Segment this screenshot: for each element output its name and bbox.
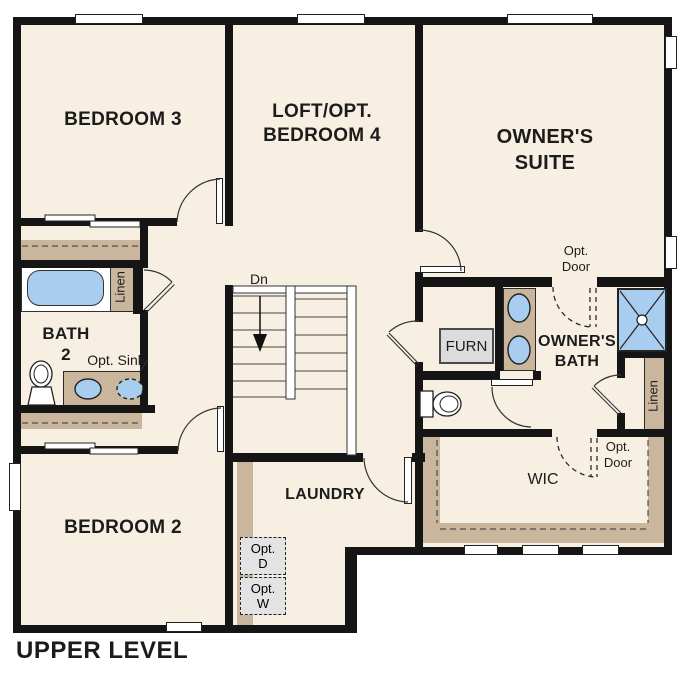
door-leaf-laundry (404, 457, 412, 504)
wall-wic-north-east (597, 429, 672, 437)
optional-dryer-box: Opt. D (240, 537, 286, 575)
bath2-vanity (63, 371, 143, 407)
bedroom3-closet-shelf (21, 240, 142, 260)
room-label-owners-bath-line2: BATH (527, 352, 627, 372)
wic-shelf-bottom (423, 523, 664, 543)
wall-laundry-north-stub (412, 453, 425, 462)
room-label-loft-line2: BEDROOM 4 (237, 124, 407, 148)
door-leaf-bedroom3 (216, 178, 223, 224)
wall-bedroom2-north (13, 446, 178, 454)
wall-loft-suite (415, 17, 423, 232)
window-suite-right-1 (665, 36, 677, 69)
wall-linen-west-lower (617, 413, 625, 437)
wall-laundry-north (233, 453, 363, 462)
wall-furnace-vanity (495, 287, 503, 371)
wall-bedroom3-loft (225, 17, 233, 226)
room-label-owners-bath-line1: OWNER'S (527, 332, 627, 352)
bedroom2-closet-shelf (21, 413, 142, 429)
room-label-owners-suite: OWNER'S SUITE (465, 124, 625, 176)
label-stairs-down: Dn (243, 271, 275, 287)
label-opt-door-wic: Opt. Door (596, 439, 640, 471)
window-bedroom3-top (75, 14, 143, 24)
label-opt-door-suite-line1: Opt. (553, 243, 599, 259)
door-leaf-owners-suite (420, 266, 465, 273)
furnace-label: FURN (446, 338, 488, 355)
wall-suite-south-east (597, 277, 672, 287)
label-linen-bath2: Linen (113, 260, 131, 315)
wall-exterior-left (13, 17, 21, 633)
wall-wc-north (415, 371, 500, 380)
window-wic-2 (522, 545, 559, 555)
label-opt-sink: Opt. Sink (80, 352, 152, 368)
label-opt-door-wic-line2: Door (596, 455, 640, 471)
label-opt-door-suite: Opt. Door (553, 243, 599, 275)
wall-wc-north-stub (533, 371, 541, 380)
bathtub (27, 270, 104, 306)
optional-washer-label-line1: Opt. (251, 581, 276, 596)
room-label-bedroom2: BEDROOM 2 (38, 517, 208, 539)
floor-plan: FURN Opt. D Opt. W (0, 0, 687, 687)
label-opt-door-suite-line2: Door (553, 259, 599, 275)
window-wic-3 (582, 545, 619, 555)
optional-washer-label-line2: W (257, 596, 269, 611)
wall-exterior-bottom-right (345, 547, 672, 555)
door-leaf-bedroom2 (217, 406, 224, 452)
room-label-bath2-line1: BATH (28, 323, 104, 344)
door-leaf-water-closet (491, 379, 533, 386)
room-label-loft-line1: LOFT/OPT. (237, 100, 407, 124)
label-opt-door-wic-line1: Opt. (596, 439, 640, 455)
room-label-wic: WIC (518, 471, 568, 489)
window-wic-1 (464, 545, 498, 555)
label-linen-owners: Linen (646, 369, 664, 424)
furnace-box: FURN (439, 328, 494, 364)
room-label-owners-suite-line1: OWNER'S (465, 124, 625, 150)
page-title: UPPER LEVEL (16, 637, 276, 665)
wall-linen-east (133, 262, 143, 314)
wall-bath2-south (13, 405, 155, 413)
room-label-owners-bath: OWNER'S BATH (527, 332, 627, 372)
wall-exterior-step (345, 547, 357, 633)
room-label-laundry: LAUNDRY (273, 486, 377, 504)
window-loft-top (297, 14, 365, 24)
room-label-bedroom3: BEDROOM 3 (38, 109, 208, 131)
wall-bedroom3-south (13, 218, 177, 226)
window-suite-right-2 (665, 236, 677, 269)
window-bedroom2-left (9, 463, 21, 511)
wall-bedroom2-east-stair (225, 285, 233, 633)
optional-dryer-label-line2: D (258, 556, 267, 571)
wall-wic-north-west (415, 429, 552, 437)
window-bedroom2-bottom (166, 622, 202, 632)
window-suite-top (507, 14, 593, 24)
room-label-loft: LOFT/OPT. BEDROOM 4 (237, 100, 407, 148)
optional-dryer-label-line1: Opt. (251, 541, 276, 556)
optional-washer-box: Opt. W (240, 577, 286, 615)
wall-suite-south-west (415, 277, 552, 287)
floor-plate-lower-left (13, 540, 357, 633)
room-label-owners-suite-line2: SUITE (465, 150, 625, 176)
